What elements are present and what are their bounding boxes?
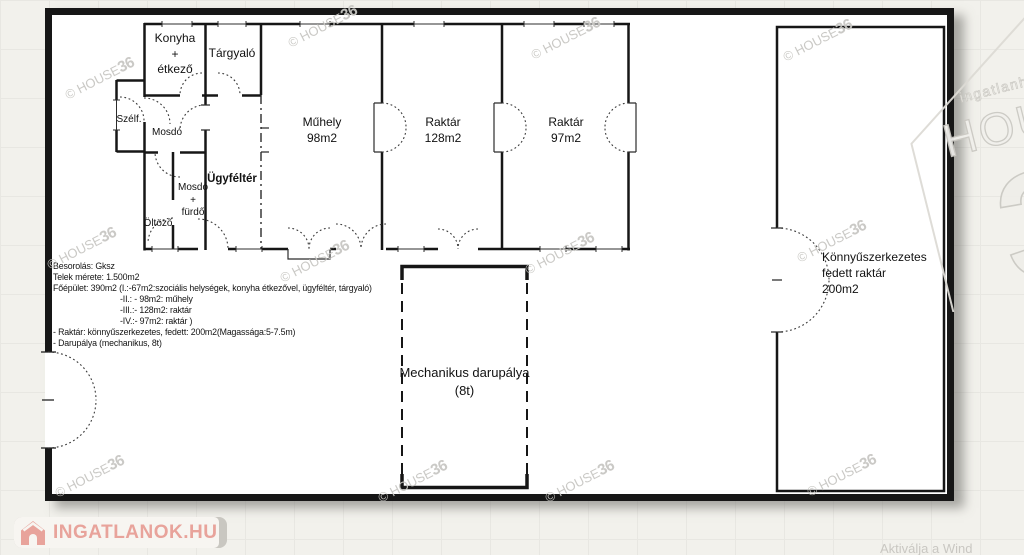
note-line: - Raktár: könnyűszerkezetes, fedett: 200… bbox=[53, 327, 372, 338]
room-label-raktar-97: Raktár 97m2 bbox=[536, 115, 596, 146]
note-line: -II.: - 98m2: műhely bbox=[53, 294, 372, 305]
room-label-fedett-raktar: Könnyűszerkezetes fedett raktár 200m2 bbox=[822, 249, 954, 298]
room-label-muhely: Műhely 98m2 bbox=[292, 115, 352, 146]
room-label-mosdo-furdo: Mosdó + fürdő bbox=[172, 182, 214, 220]
site-paper bbox=[45, 8, 954, 501]
ingatlanok-logo-pill: INGATLANOK.HU bbox=[14, 517, 219, 548]
note-line: Főépület: 390m2 (I.:-67m2:szociális hely… bbox=[53, 283, 372, 294]
activate-hint: Aktiválja a Wind bbox=[880, 541, 972, 555]
room-label-konyha: Konyha + étkező bbox=[146, 31, 204, 78]
note-line: - Darupálya (mechanikus, 8t) bbox=[53, 338, 372, 349]
room-label-targyalo: Tárgyaló bbox=[204, 46, 260, 62]
room-label-szelfogo: Szélf. bbox=[111, 113, 147, 126]
floorplan-page: Konyha + étkező Tárgyaló Szélf. Mosdó Üg… bbox=[0, 0, 1024, 555]
notes-block: Besorolás: GkszTelek mérete: 1.500m2Főép… bbox=[53, 261, 372, 349]
note-line: -III.:- 128m2: raktár bbox=[53, 305, 372, 316]
room-label-mosdo: Mosdó bbox=[147, 126, 187, 139]
room-label-darupalya: Mechanikus darupálya (8t) bbox=[392, 364, 537, 399]
note-line: Telek mérete: 1.500m2 bbox=[53, 272, 372, 283]
house-icon bbox=[20, 520, 46, 546]
note-line: -IV.:- 97m2: raktár ) bbox=[53, 316, 372, 327]
ingatlanok-logo: INGATLANOK.HU bbox=[14, 517, 227, 548]
note-line: Besorolás: Gksz bbox=[53, 261, 372, 272]
ingatlanok-logo-text: INGATLANOK.HU bbox=[53, 522, 217, 544]
room-label-raktar-128: Raktár 128m2 bbox=[413, 115, 473, 146]
room-label-oltozo: Öltöző bbox=[138, 217, 178, 230]
